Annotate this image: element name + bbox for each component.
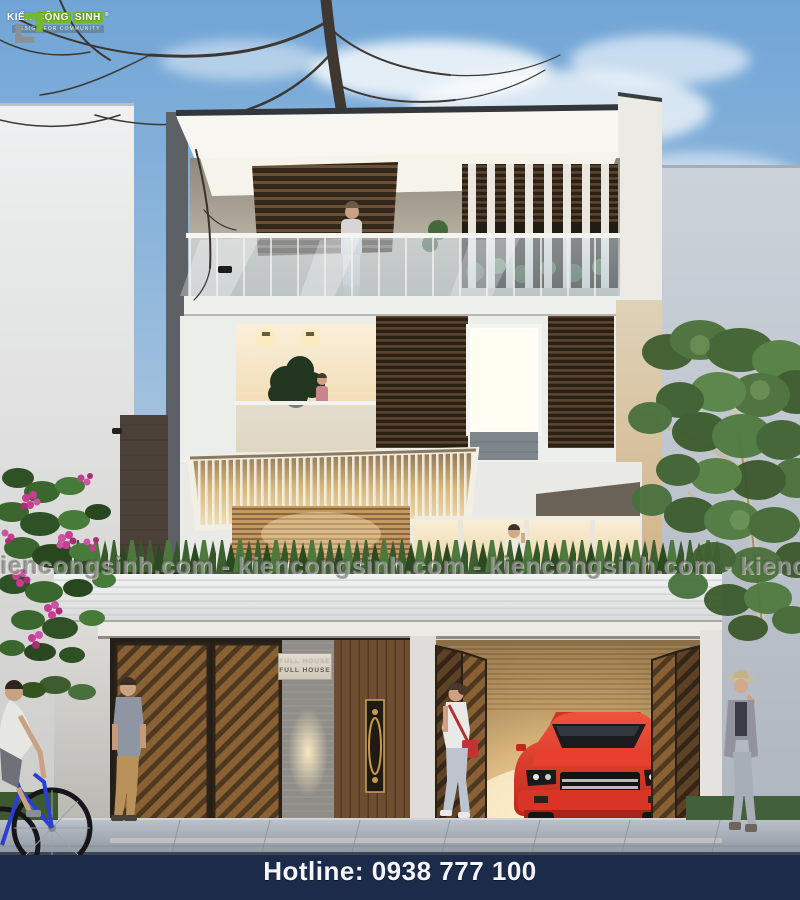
sign-text: FULL HOUSE xyxy=(279,667,330,675)
gate-panel-2 xyxy=(214,644,280,834)
registered-mark: ® xyxy=(105,12,109,18)
balcony-opening xyxy=(234,324,378,460)
third-floor-terrace xyxy=(180,152,620,318)
hotline-text: Hotline: 0938 777 100 xyxy=(263,856,537,887)
sign-text-embossed: FULL HOUSE xyxy=(279,658,330,666)
brand-logo: KIẾN CỘNG SINH ® DESIGN FOR COMMUNITY xyxy=(12,10,104,33)
louver-panel-center xyxy=(376,316,468,448)
glass-railing xyxy=(180,233,620,298)
louver-panel-right xyxy=(548,316,614,448)
watermark-text: kiencongsinh.com - kiencongsinh.com - ki… xyxy=(0,552,800,582)
full-house-sign: FULL HOUSE FULL HOUSE xyxy=(278,653,332,680)
hotline-bar: Hotline: 0938 777 100 xyxy=(0,855,800,900)
sidewalk xyxy=(0,818,800,856)
entry-door xyxy=(334,640,410,838)
person-balcony xyxy=(316,373,328,404)
architectural-render: KIẾN CỘNG SINH ® DESIGN FOR COMMUNITY ki… xyxy=(0,0,800,900)
logo-word-3: SINH xyxy=(73,12,103,23)
logo-icon xyxy=(12,10,46,46)
scene-art xyxy=(0,0,800,900)
